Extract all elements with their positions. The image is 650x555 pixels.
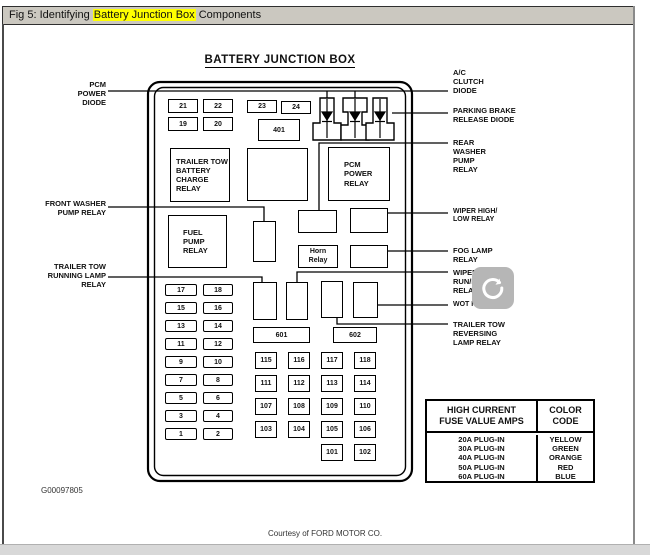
leader-trailer-running-relay bbox=[108, 277, 262, 283]
high-current-fuse-cell: 118 bbox=[354, 352, 376, 369]
fuse-cell: 12 bbox=[203, 338, 233, 350]
table-cell-amps: 60A PLUG-IN bbox=[427, 472, 538, 481]
fuse-cell: 14 bbox=[203, 320, 233, 332]
table-cell-color: YELLOW bbox=[538, 435, 593, 444]
leader-trailer-reversing-relay bbox=[337, 318, 448, 324]
table-header-row: HIGH CURRENT FUSE VALUE AMPS COLOR CODE bbox=[427, 401, 593, 433]
fuse-cell: 9 bbox=[165, 356, 197, 368]
high-current-fuse-cell: 117 bbox=[321, 352, 343, 369]
high-current-fuse-cell: 115 bbox=[255, 352, 277, 369]
table-cell-color: ORANGE bbox=[538, 453, 593, 462]
fuse-cell: 10 bbox=[203, 356, 233, 368]
fuse-21: 21 bbox=[168, 99, 198, 113]
table-row: 40A PLUG-IN ORANGE bbox=[427, 453, 593, 462]
fuse-22: 22 bbox=[203, 99, 233, 113]
label-fog-lamp-relay: FOG LAMP RELAY bbox=[453, 246, 548, 264]
high-current-fuse-cell: 109 bbox=[321, 398, 343, 415]
trailer-tow-reversing-relay-box bbox=[321, 281, 343, 318]
rear-washer-pump-relay-box bbox=[298, 210, 337, 233]
wiper-high-low-relay-box bbox=[350, 208, 388, 233]
fuse-cell: 8 bbox=[203, 374, 233, 386]
fuse-cell: 1 bbox=[165, 428, 197, 440]
high-current-fuse-cell: 107 bbox=[255, 398, 277, 415]
fuse-cell: 17 bbox=[165, 284, 197, 296]
table-cell-color: RED bbox=[538, 463, 593, 472]
fuse-602: 602 bbox=[333, 327, 377, 343]
high-current-fuse-cell: 111 bbox=[255, 375, 277, 392]
diagram-title: BATTERY JUNCTION BOX bbox=[148, 54, 412, 66]
high-current-fuse-cell: 113 bbox=[321, 375, 343, 392]
figure-code: G00097805 bbox=[41, 486, 83, 495]
fuse-cell: 15 bbox=[165, 302, 197, 314]
high-current-fuse-cell: 116 bbox=[288, 352, 310, 369]
table-row: 50A PLUG-IN RED bbox=[427, 463, 593, 472]
fog-lamp-relay-box bbox=[350, 245, 388, 268]
label-trailer-tow-running-lamp-relay: TRAILER TOW RUNNING LAMP RELAY bbox=[10, 262, 106, 289]
table-header-color-code: COLOR CODE bbox=[538, 401, 593, 431]
table-cell-color: GREEN bbox=[538, 444, 593, 453]
high-current-fuse-cell: 105 bbox=[321, 421, 343, 438]
table-row: 60A PLUG-IN BLUE bbox=[427, 472, 593, 481]
fuse-cell: 5 bbox=[165, 392, 197, 404]
screenshot-root: { "window": { "title_prefix": "Fig 5: Id… bbox=[0, 0, 650, 555]
fuse-cell: 2 bbox=[203, 428, 233, 440]
fuse-cell: 7 bbox=[165, 374, 197, 386]
leader-wiper-run-park-relay bbox=[297, 272, 448, 282]
trailer-tow-battery-charge-relay: TRAILER TOW BATTERY CHARGE RELAY bbox=[170, 148, 230, 202]
fuse-601: 601 bbox=[253, 327, 310, 343]
high-current-fuse-cell: 106 bbox=[354, 421, 376, 438]
courtesy-note: Courtesy of FORD MOTOR CO. bbox=[268, 529, 382, 538]
fuse-color-code-table: HIGH CURRENT FUSE VALUE AMPS COLOR CODE … bbox=[425, 399, 595, 483]
high-current-fuse-cell: 103 bbox=[255, 421, 277, 438]
refresh-icon bbox=[480, 275, 506, 301]
unlabeled-relay-box bbox=[247, 148, 308, 201]
fuel-pump-relay: FUEL PUMP RELAY bbox=[168, 215, 227, 268]
label-trailer-tow-reversing-lamp-relay: TRAILER TOW REVERSING LAMP RELAY bbox=[453, 320, 548, 347]
diode-outlines bbox=[313, 98, 394, 140]
left-fuse-grid: 171815161314111291078563412 bbox=[165, 284, 233, 440]
table-row: 20A PLUG-IN YELLOW bbox=[427, 435, 593, 444]
high-current-fuse-grid: 1151161171181111121131141071081091101031… bbox=[255, 352, 376, 461]
table-cell-amps: 50A PLUG-IN bbox=[427, 463, 538, 472]
trailer-tow-running-lamp-relay-box bbox=[253, 282, 277, 320]
high-current-fuse-cell: 104 bbox=[288, 421, 310, 438]
wiper-run-park-relay-box bbox=[286, 282, 308, 320]
table-header-fuse-value: HIGH CURRENT FUSE VALUE AMPS bbox=[427, 401, 538, 431]
fuse-cell: 4 bbox=[203, 410, 233, 422]
table-cell-amps: 20A PLUG-IN bbox=[427, 435, 538, 444]
table-body: 20A PLUG-IN YELLOW 30A PLUG-IN GREEN 40A… bbox=[427, 433, 593, 481]
fuse-401: 401 bbox=[258, 119, 300, 141]
horn-relay: Horn Relay bbox=[298, 245, 338, 268]
label-parking-brake-release-diode: PARKING BRAKE RELEASE DIODE bbox=[453, 106, 548, 124]
fuse-19: 19 bbox=[168, 117, 198, 131]
fuse-cell: 18 bbox=[203, 284, 233, 296]
table-cell-amps: 30A PLUG-IN bbox=[427, 444, 538, 453]
label-pcm-power-diode: PCM POWER DIODE bbox=[10, 80, 106, 107]
fuse-cell: 11 bbox=[165, 338, 197, 350]
label-front-washer-pump-relay: FRONT WASHER PUMP RELAY bbox=[10, 199, 106, 217]
pcm-power-relay: PCM POWER RELAY bbox=[328, 147, 390, 201]
fuse-23: 23 bbox=[247, 100, 277, 113]
loading-spinner-overlay[interactable] bbox=[472, 267, 514, 309]
table-cell-amps: 40A PLUG-IN bbox=[427, 453, 538, 462]
table-cell-color: BLUE bbox=[538, 472, 593, 481]
label-wiper-high-low-relay: WIPER HIGH/ LOW RELAY bbox=[453, 208, 548, 225]
high-current-fuse-cell: 108 bbox=[288, 398, 310, 415]
fuse-cell: 3 bbox=[165, 410, 197, 422]
fuse-cell: 16 bbox=[203, 302, 233, 314]
label-ac-clutch-diode: A/C CLUTCH DIODE bbox=[453, 68, 548, 95]
fuse-20: 20 bbox=[203, 117, 233, 131]
label-rear-washer-pump-relay: REAR WASHER PUMP RELAY bbox=[453, 138, 548, 174]
fuse-cell: 6 bbox=[203, 392, 233, 404]
fuse-cell: 13 bbox=[165, 320, 197, 332]
high-current-fuse-cell: 112 bbox=[288, 375, 310, 392]
high-current-fuse-cell: 102 bbox=[354, 444, 376, 461]
table-row: 30A PLUG-IN GREEN bbox=[427, 444, 593, 453]
fuse-24: 24 bbox=[281, 101, 311, 114]
wot-relay-box bbox=[353, 282, 378, 318]
high-current-fuse-cell: 101 bbox=[321, 444, 343, 461]
high-current-fuse-cell: 114 bbox=[354, 375, 376, 392]
front-washer-pump-relay-box bbox=[253, 221, 276, 262]
high-current-fuse-cell: 110 bbox=[354, 398, 376, 415]
